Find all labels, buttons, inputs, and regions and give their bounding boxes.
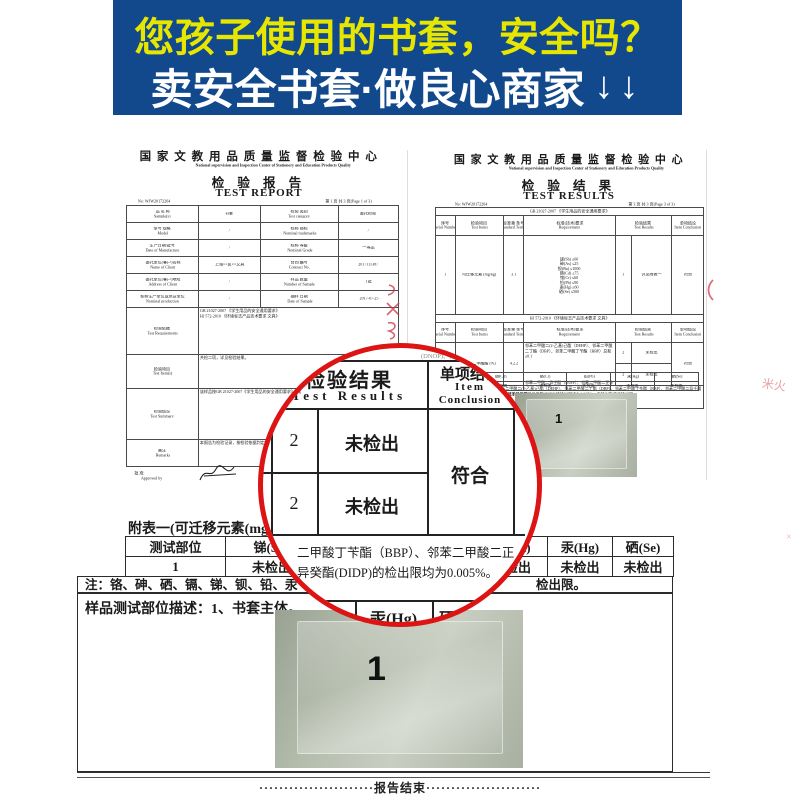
report-page: 第 1 页 共 3 页(Page 1 of 3) xyxy=(325,199,371,203)
approved-label-en: Approved by xyxy=(141,476,162,480)
approval-signature xyxy=(196,464,242,486)
report-no: No: WJW20172264 xyxy=(455,202,487,206)
table-row: 委托单位(客户)名称Name of Client 上海××区××文具 合同 编号… xyxy=(127,257,399,274)
red-seal-dot: × xyxy=(786,532,792,543)
center-name-en: National supervision and Inspection Cent… xyxy=(118,163,400,167)
standard-row: GB 21027-2007 《学生用品的安全通用要求》 xyxy=(436,208,704,216)
magnified-note-line1: 二甲酸丁苄酯（BBP）、邻苯二甲酸二正 xyxy=(297,542,514,561)
info-value: 书套 xyxy=(225,212,233,216)
magnified-row2-result: 未检出 xyxy=(317,493,427,519)
sample-number-label: 1 xyxy=(367,650,386,689)
center-name-cn: 国 家 文 教 用 品 质 量 监 督 检 验 中 心 xyxy=(435,151,703,167)
magnified-verdict: 符合 xyxy=(427,461,513,488)
magnified-conclusion-header-en1: Item xyxy=(427,381,513,393)
down-arrows-icon: ↓↓ xyxy=(595,65,645,108)
sample-description: 样品测试部位描述：1、书套主体。 xyxy=(85,598,302,618)
sample-number-label: 1 xyxy=(555,411,562,426)
report-meta: No: WJW20172264 第 1 页 共 3 页(Page 1 of 3) xyxy=(118,199,400,203)
magnified-row1-no: 2 xyxy=(271,430,317,451)
standard-name: GB 21027-2007 《学生用品的安全通用要求》 xyxy=(530,209,610,213)
standard-row: HJ 572-2010 《环境标志产品技术要求 文具》 xyxy=(436,314,704,322)
magnifier-circle: (DNOP)、(DIDP) 总和≤0.1 检验结果 Test Results 单… xyxy=(258,343,542,627)
center-name-cn: 国 家 文 教 用 品 质 量 监 督 检 验 中 心 xyxy=(118,148,400,164)
header-row: 序号Serial Number 检验项目Test Items 标准章 条号Sta… xyxy=(436,322,704,342)
banner-headline: 您孩子使用的书套，安全吗？ xyxy=(113,5,682,63)
table-row: 检验依据Test Requirements GB 21027-2007 《学生用… xyxy=(127,308,399,355)
dot-leader: ······················· xyxy=(259,781,374,795)
grid-line xyxy=(263,534,525,536)
table-row: 型号 规格Model / 标称 商标Nominal trademarks / xyxy=(127,223,399,240)
appendix-note-right: 检出限。 xyxy=(536,577,586,593)
red-handwriting-mark xyxy=(381,281,407,343)
results-meta: No: WJW20172264 第 3 页 共 3 页(Page 3 of 3) xyxy=(435,202,703,206)
promo-page: { "banner": { "line1": "您孩子使用的书套，安全吗？", … xyxy=(0,0,800,800)
report-title-en: TEST REPORT xyxy=(118,187,400,199)
table-row: 品 名 称Sample(s) 书套 检验 类别Test category 委托检… xyxy=(127,206,399,223)
magnified-row1-result: 未检出 xyxy=(317,430,427,456)
magnified-conclusion-header-en2: Conclusion xyxy=(427,394,513,406)
report-end-rule xyxy=(77,772,710,778)
banner-subline: 卖安全书套·做良心商家 ↓↓ xyxy=(113,56,682,117)
ghost-text: (DNOP)、(DIDP) 总和≤0.1 xyxy=(421,350,495,360)
conclusion-cell: 符合 xyxy=(683,273,691,277)
grid-line xyxy=(513,360,515,534)
magnified-results-header-en: Test Results xyxy=(271,388,427,404)
wide-value: GB 21027-2007 《学生用品的安全通用要求》 HJ 572-2010 … xyxy=(199,308,398,319)
banner-subline-text: 卖安全书套·做良心商家 xyxy=(151,56,585,117)
header-row: 序号Serial Number 检验项目Test Items 标准章 条号Sta… xyxy=(436,216,704,236)
standard-name: HJ 572-2010 《环境标志产品技术要求 文具》 xyxy=(530,316,610,320)
red-seal-fragment: 米火 xyxy=(761,374,787,394)
report-end-text: ·······················报告结束·············… xyxy=(0,779,800,796)
conclusion-cell: 符合 xyxy=(683,362,691,366)
grid-line xyxy=(432,600,434,627)
magnified-row2-no: 2 xyxy=(271,493,317,514)
grid-line xyxy=(263,408,525,410)
page-edge xyxy=(706,150,707,480)
dot-leader: ······················· xyxy=(426,781,541,795)
center-name-en: National supervision and Inspection Cent… xyxy=(435,166,703,170)
table-row: 委托单位(客户)地址Address of Client / 样品 数量Numbe… xyxy=(127,274,399,291)
table-row: 生产日期/批号Date of Manufacture / 标称 等级Nomina… xyxy=(127,240,399,257)
grid-line xyxy=(263,360,525,362)
appendix-note-left: 注：铬、砷、硒、镉、锑、钡、铅、汞 xyxy=(85,578,298,592)
grid-line xyxy=(293,600,513,602)
info-value: 委托检验 xyxy=(360,212,376,216)
table-row: 标称生产单位或供货单位Nominal production / 抽样 日期Dat… xyxy=(127,291,399,308)
result-row-1: 1 可迁移元素 (mg/kg) 3.1 锑(Sb) ≤60 砷(As) ≤25 … xyxy=(436,236,704,315)
grid-line xyxy=(263,472,427,474)
plastic-sheet xyxy=(297,621,503,754)
sample-photo-large: 1 xyxy=(275,610,523,768)
report-end-label: 报告结束 xyxy=(374,781,426,795)
report-page: 第 3 页 共 3 页(Page 3 of 3) xyxy=(628,202,674,206)
top-banner: 您孩子使用的书套，安全吗？ 卖安全书套·做良心商家 ↓↓ xyxy=(113,0,682,115)
magnified-note-line2: 异癸酯(DIDP)的检出限均为0.005%。 xyxy=(297,562,498,581)
report-no: No: WJW20172264 xyxy=(138,199,170,203)
plastic-sheet xyxy=(526,399,627,470)
red-check-mark xyxy=(703,278,719,302)
page-edge xyxy=(407,150,408,350)
results-title-en: TEST RESULTS xyxy=(435,190,703,202)
